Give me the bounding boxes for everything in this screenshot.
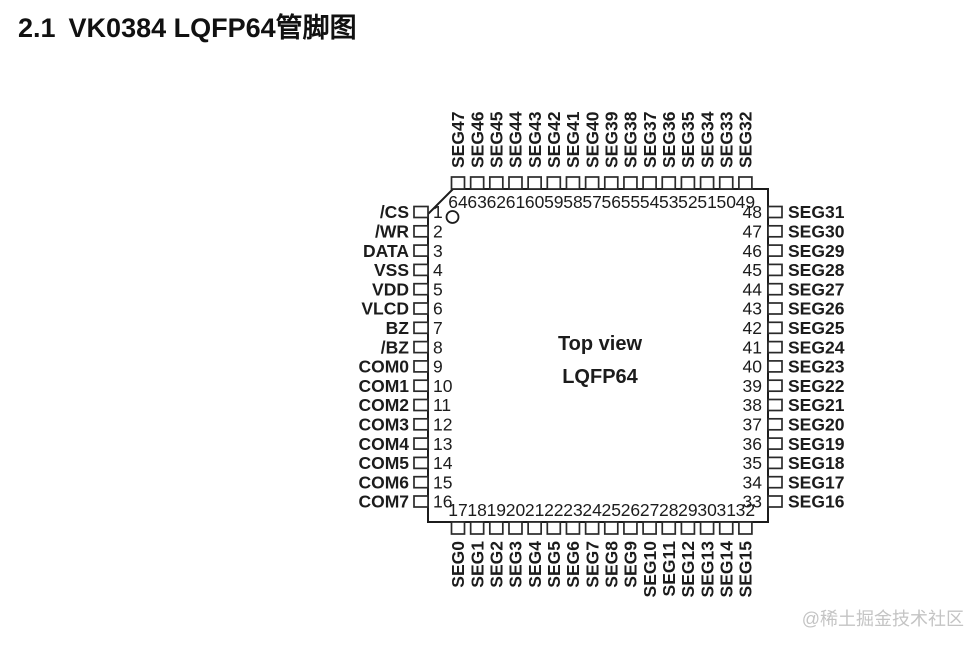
pin-name: SEG39 <box>601 111 621 168</box>
pin: 28SEG11 <box>659 500 679 596</box>
pin-number: 52 <box>678 192 697 212</box>
pin-name: SEG25 <box>788 318 845 338</box>
pin: 4VSS <box>374 260 443 280</box>
pin-stub <box>528 522 541 534</box>
pin-stub <box>414 477 428 488</box>
pin: 50SEG33 <box>716 111 736 212</box>
pin-stub <box>414 419 428 430</box>
pin-number: 30 <box>697 500 717 520</box>
pin-name: VLCD <box>361 299 409 319</box>
pin-stub <box>701 177 714 189</box>
pin-stub <box>768 245 782 256</box>
pinout-diagram: 64SEG4763SEG4662SEG4561SEG4460SEG4359SEG… <box>0 0 972 648</box>
pin-name: SEG10 <box>640 541 660 598</box>
pin-number: 57 <box>582 192 601 212</box>
pin-name: COM2 <box>358 395 409 415</box>
pin-number: 12 <box>433 415 452 435</box>
pin-stub <box>471 177 484 189</box>
pin: 54SEG37 <box>640 112 660 212</box>
pin-name: SEG5 <box>544 541 564 588</box>
pin-stub <box>768 380 782 391</box>
package-label: LQFP64 <box>562 366 638 388</box>
pin-name: SEG16 <box>788 492 845 512</box>
pin-name: SEG31 <box>788 202 845 222</box>
pin-stub <box>605 177 618 189</box>
pin-stub <box>547 522 560 534</box>
pin-name: SEG27 <box>788 279 844 299</box>
pin-stub <box>414 438 428 449</box>
pin-number: 47 <box>743 222 762 242</box>
pin: 36SEG19 <box>743 434 845 454</box>
pin-number: 9 <box>433 357 443 377</box>
pin: 26SEG9 <box>621 500 641 588</box>
right-pins: 48SEG3147SEG3046SEG2945SEG2844SEG2743SEG… <box>743 202 845 512</box>
pin-name: SEG37 <box>640 112 660 168</box>
pin: 34SEG17 <box>743 472 845 492</box>
pin-stub <box>624 522 637 534</box>
pin-number: 56 <box>602 192 621 212</box>
pin-name: /CS <box>380 202 409 222</box>
pin-number: 43 <box>743 299 762 319</box>
pin-stub <box>566 522 579 534</box>
pin-name: COM1 <box>358 376 409 396</box>
pin: 38SEG21 <box>743 395 845 415</box>
pin-stub <box>768 226 782 237</box>
pin-number: 21 <box>525 500 544 520</box>
pin-stub <box>701 522 714 534</box>
pin: 18SEG1 <box>467 500 487 588</box>
pin-stub <box>414 322 428 333</box>
pin-name: DATA <box>363 241 409 261</box>
pin: 46SEG29 <box>743 241 845 261</box>
pin: 25SEG8 <box>601 500 621 588</box>
pin-number: 10 <box>433 376 453 396</box>
pin: 51SEG34 <box>697 111 717 212</box>
pin-number: 54 <box>640 192 660 212</box>
pin-stub <box>643 522 656 534</box>
pin-name: SEG41 <box>563 111 583 168</box>
pin: 16COM7 <box>358 492 452 512</box>
pin-name: SEG12 <box>678 541 698 598</box>
pin-number: 19 <box>487 500 506 520</box>
pin-number: 59 <box>544 192 563 212</box>
pin-name: SEG38 <box>621 111 641 168</box>
pin-stub <box>414 245 428 256</box>
pin-stub <box>414 303 428 314</box>
pin-number: 6 <box>433 299 443 319</box>
pin-stub <box>768 342 782 353</box>
pin: 13COM4 <box>358 434 452 454</box>
pin-number: 20 <box>506 500 526 520</box>
pin-stub <box>720 522 733 534</box>
pin-number: 31 <box>717 500 736 520</box>
pin-number: 13 <box>433 434 452 454</box>
pin-number: 36 <box>743 434 762 454</box>
pin: 52SEG35 <box>678 111 698 212</box>
pin-name: SEG23 <box>788 357 845 377</box>
pin-number: 48 <box>743 202 762 222</box>
pin-number: 28 <box>659 500 678 520</box>
pin-number: 35 <box>743 453 762 473</box>
pin: 14COM5 <box>358 453 452 473</box>
pin-number: 64 <box>448 192 468 212</box>
pin-number: 45 <box>743 260 762 280</box>
pin-name: SEG8 <box>601 541 621 588</box>
pin: 45SEG28 <box>743 260 845 280</box>
pin: 17SEG0 <box>448 500 468 588</box>
pin-name: SEG24 <box>788 337 845 357</box>
pin-number: 46 <box>743 241 762 261</box>
pin-name: SEG36 <box>659 111 679 168</box>
pin-name: SEG20 <box>788 415 845 435</box>
pin: 55SEG38 <box>621 111 641 212</box>
pin: 15COM6 <box>358 472 452 492</box>
pin-name: SEG14 <box>716 541 736 598</box>
pin: 2/WR <box>375 222 443 242</box>
pin-stub <box>768 419 782 430</box>
pin: 64SEG47 <box>448 112 468 212</box>
pin-name: SEG6 <box>563 541 583 588</box>
pin-stub <box>768 438 782 449</box>
pin-name: SEG2 <box>487 541 507 588</box>
bottom-pins: 17SEG018SEG119SEG220SEG321SEG422SEG523SE… <box>448 500 755 597</box>
pin-number: 41 <box>743 337 762 357</box>
pin-number: 61 <box>506 192 525 212</box>
pin-stub <box>681 522 694 534</box>
pin-name: COM4 <box>358 434 409 454</box>
pin-name: SEG21 <box>788 395 845 415</box>
pin: 32SEG15 <box>736 500 756 597</box>
pin-stub <box>768 496 782 507</box>
pin-name: COM3 <box>358 415 409 435</box>
pin-stub <box>471 522 484 534</box>
pin-name: SEG35 <box>678 111 698 168</box>
pin-name: COM7 <box>358 492 409 512</box>
pin-name: SEG34 <box>697 111 717 168</box>
page: 2.1VK0384 LQFP64管脚图 64SEG4763SEG4662SEG4… <box>0 0 972 648</box>
pin-number: 60 <box>525 192 545 212</box>
pin: 56SEG39 <box>601 111 621 212</box>
pin: 10COM1 <box>358 376 452 396</box>
pin-number: 15 <box>433 472 452 492</box>
pin-stub <box>739 522 752 534</box>
pin-stub <box>605 522 618 534</box>
pin-number: 44 <box>743 279 763 299</box>
pin-number: 14 <box>433 453 453 473</box>
pin-name: SEG42 <box>544 111 564 168</box>
pin-name: SEG30 <box>788 222 845 242</box>
pin-name: SEG3 <box>506 541 526 588</box>
pin-number: 29 <box>678 500 697 520</box>
pin-number: 39 <box>743 376 762 396</box>
pin: 61SEG44 <box>506 111 526 212</box>
pin: 42SEG25 <box>743 318 845 338</box>
pin-stub <box>490 522 503 534</box>
pin: 19SEG2 <box>487 500 507 588</box>
pin-name: SEG44 <box>506 111 526 168</box>
pin-number: 53 <box>659 192 678 212</box>
pin-stub <box>490 177 503 189</box>
pin-number: 38 <box>743 395 762 415</box>
pin-number: 37 <box>743 415 762 435</box>
pin-name: VDD <box>372 279 409 299</box>
pin-name: SEG19 <box>788 434 845 454</box>
pin-stub <box>768 457 782 468</box>
pin-stub <box>547 177 560 189</box>
pin-name: SEG46 <box>467 111 487 168</box>
pin-stub <box>452 522 465 534</box>
pin-stub <box>720 177 733 189</box>
top-view-label: Top view <box>558 333 643 355</box>
pin: 24SEG7 <box>582 500 602 588</box>
left-pins: 1/CS2/WR3DATA4VSS5VDD6VLCD7BZ8/BZ9COM010… <box>358 202 452 512</box>
pin-stub <box>768 284 782 295</box>
pin: 57SEG40 <box>582 111 602 212</box>
pin: 27SEG10 <box>640 500 660 597</box>
pin-number: 4 <box>433 260 443 280</box>
pin-stub <box>509 522 522 534</box>
pin-number: 26 <box>621 500 640 520</box>
pin-name: COM0 <box>358 357 409 377</box>
pin-name: SEG11 <box>659 541 679 597</box>
pin-name: SEG22 <box>788 376 845 396</box>
pin: 43SEG26 <box>743 299 845 319</box>
top-pins: 64SEG4763SEG4662SEG4561SEG4460SEG4359SEG… <box>448 111 755 212</box>
pin-name: COM6 <box>358 472 409 492</box>
pin-number: 40 <box>743 357 763 377</box>
pin-stub <box>643 177 656 189</box>
pin: 21SEG4 <box>525 500 545 588</box>
pin-stub <box>414 361 428 372</box>
pin-number: 27 <box>640 500 659 520</box>
pin: 59SEG42 <box>544 111 564 212</box>
pin-stub <box>528 177 541 189</box>
pin-number: 34 <box>743 472 763 492</box>
pin-number: 18 <box>467 500 486 520</box>
pin-number: 11 <box>433 395 451 415</box>
pin: 44SEG27 <box>743 279 845 299</box>
pin-stub <box>414 457 428 468</box>
pin-name: SEG43 <box>525 111 545 168</box>
pin-number: 22 <box>544 500 563 520</box>
pin-name: BZ <box>386 318 410 338</box>
pin-stub <box>414 207 428 218</box>
pin: 41SEG24 <box>743 337 845 357</box>
pin-stub <box>414 400 428 411</box>
pin-number: 62 <box>487 192 506 212</box>
pin-number: 24 <box>582 500 602 520</box>
pin-name: SEG26 <box>788 299 845 319</box>
pin-number: 17 <box>448 500 467 520</box>
pin-number: 8 <box>433 337 443 357</box>
pin: 29SEG12 <box>678 500 698 597</box>
pin-stub <box>768 361 782 372</box>
pin-name: VSS <box>374 260 409 280</box>
pin: 31SEG14 <box>716 500 736 597</box>
pin-stub <box>414 342 428 353</box>
pin-number: 63 <box>467 192 486 212</box>
pin: 7BZ <box>386 318 443 338</box>
pin: 22SEG5 <box>544 500 564 588</box>
pin-number: 58 <box>563 192 582 212</box>
pin-name: SEG17 <box>788 472 844 492</box>
pin-name: SEG4 <box>525 541 545 588</box>
pin: 49SEG32 <box>736 111 756 212</box>
pin-name: SEG7 <box>582 541 602 588</box>
pin-name: SEG32 <box>736 111 756 168</box>
pin: 40SEG23 <box>743 357 845 377</box>
pin: 63SEG46 <box>467 111 487 212</box>
pin-stub <box>768 303 782 314</box>
pin-name: /BZ <box>381 337 410 357</box>
pin: 11COM2 <box>358 395 451 415</box>
pin-number: 42 <box>743 318 762 338</box>
pin-stub <box>414 380 428 391</box>
pin: 30SEG13 <box>697 500 717 597</box>
pin-stub <box>739 177 752 189</box>
pin-name: SEG33 <box>716 111 736 168</box>
pin-name: SEG45 <box>487 111 507 168</box>
pin-number: 55 <box>621 192 640 212</box>
pin-number: 25 <box>602 500 621 520</box>
pin-stub <box>768 264 782 275</box>
pin: 8/BZ <box>381 337 443 357</box>
pin: 60SEG43 <box>525 111 545 212</box>
pin: 23SEG6 <box>563 500 583 588</box>
watermark: @稀土掘金技术社区 <box>802 605 964 631</box>
pin: 48SEG31 <box>743 202 845 222</box>
pin-stub <box>414 264 428 275</box>
pin-name: SEG47 <box>448 112 468 168</box>
pin-stub <box>414 284 428 295</box>
pin-stub <box>414 496 428 507</box>
pin-stub <box>681 177 694 189</box>
pin-name: /WR <box>375 222 409 242</box>
pin-stub <box>509 177 522 189</box>
pin-number: 3 <box>433 241 443 261</box>
pin-stub <box>414 226 428 237</box>
pin: 12COM3 <box>358 415 452 435</box>
pin: 37SEG20 <box>743 415 845 435</box>
pin: 58SEG41 <box>563 111 583 212</box>
chip-body <box>428 189 768 522</box>
pin: 47SEG30 <box>743 222 845 242</box>
pin-number: 50 <box>717 192 737 212</box>
pin-stub <box>768 322 782 333</box>
pin-name: SEG13 <box>697 541 717 598</box>
pin-name: SEG18 <box>788 453 845 473</box>
pin: 35SEG18 <box>743 453 845 473</box>
pin: 53SEG36 <box>659 111 679 212</box>
pin-number: 7 <box>433 318 443 338</box>
pin-number: 32 <box>736 500 755 520</box>
pin: 33SEG16 <box>743 492 845 512</box>
pin-stub <box>768 477 782 488</box>
pin-stub <box>662 522 675 534</box>
pin-number: 2 <box>433 222 443 242</box>
pin: 62SEG45 <box>487 111 507 212</box>
pin-stub <box>662 177 675 189</box>
pin-stub <box>452 177 465 189</box>
pin-stub <box>768 207 782 218</box>
pin-stub <box>624 177 637 189</box>
pin: 1/CS <box>380 202 443 222</box>
pin: 39SEG22 <box>743 376 845 396</box>
pin-name: SEG9 <box>621 541 641 588</box>
pin: 5VDD <box>372 279 443 299</box>
pin-number: 51 <box>697 192 716 212</box>
pin-stub <box>586 522 599 534</box>
pin-stub <box>768 400 782 411</box>
pin-name: SEG40 <box>582 111 602 168</box>
pin-name: SEG0 <box>448 541 468 588</box>
pin-name: SEG1 <box>467 541 487 588</box>
pin: 20SEG3 <box>506 500 526 588</box>
pin-name: SEG28 <box>788 260 845 280</box>
pin-number: 1 <box>433 202 443 222</box>
pin-name: COM5 <box>358 453 409 473</box>
pin-number: 23 <box>563 500 582 520</box>
pin-stub <box>586 177 599 189</box>
pin-number: 5 <box>433 279 443 299</box>
pin-name: SEG29 <box>788 241 845 261</box>
pin-name: SEG15 <box>736 541 756 598</box>
pin-stub <box>566 177 579 189</box>
